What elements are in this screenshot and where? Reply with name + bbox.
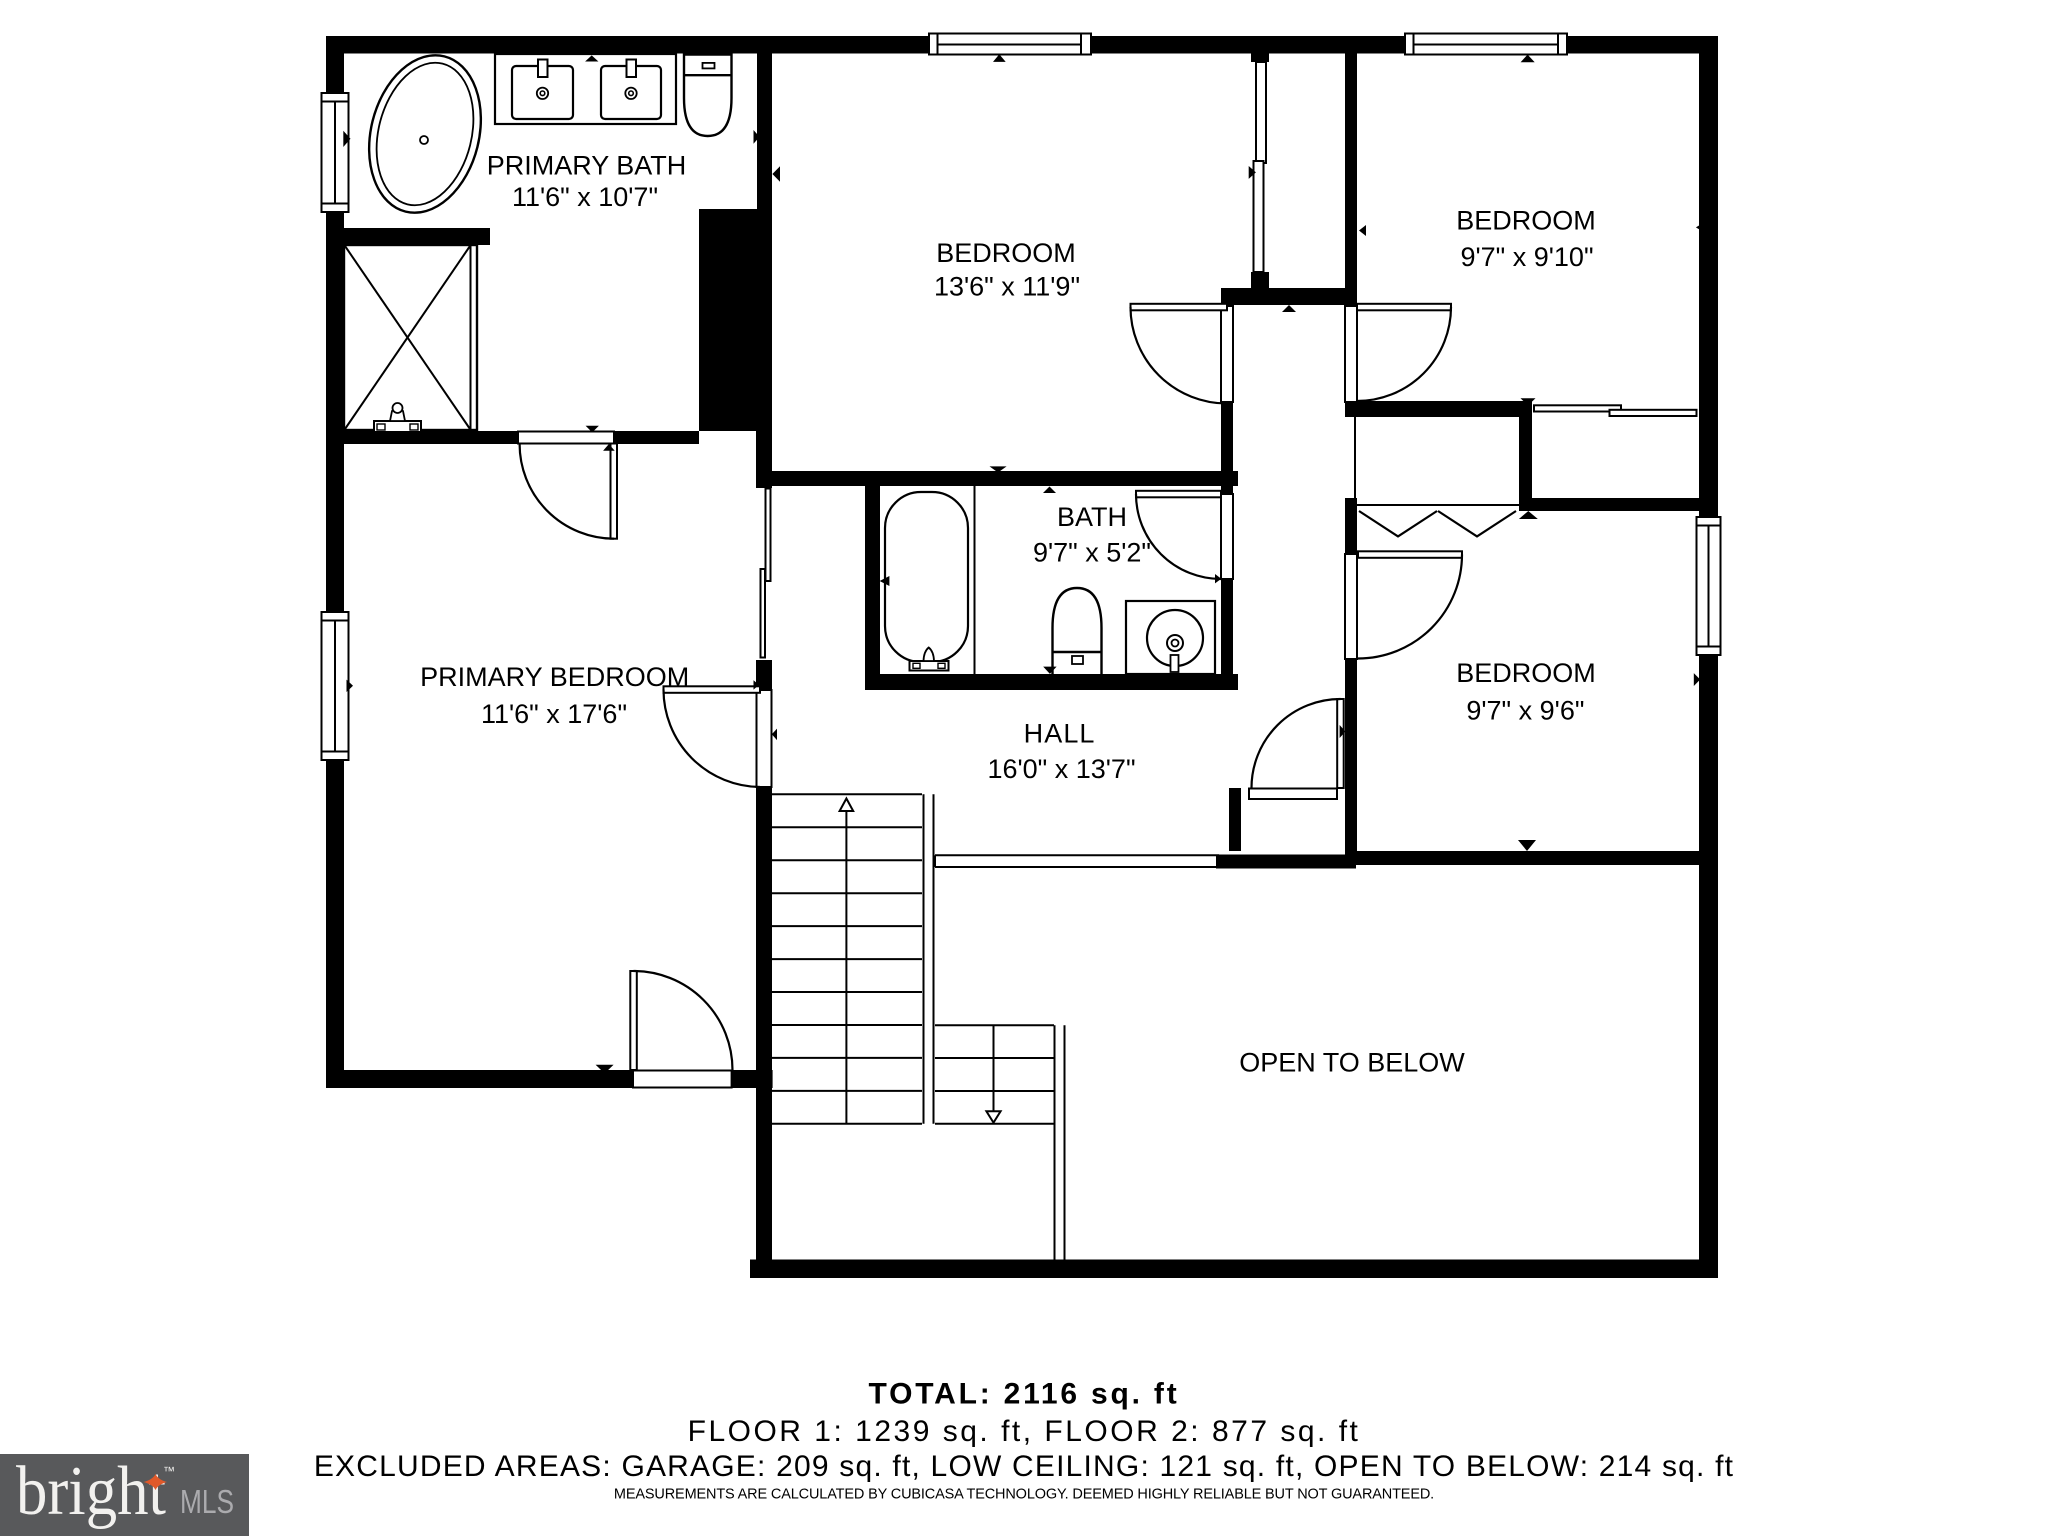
svg-text:bright: bright [16,1453,166,1530]
svg-text:HALL: HALL [1024,719,1096,749]
svg-text:MEASUREMENTS ARE CALCULATED BY: MEASUREMENTS ARE CALCULATED BY CUBICASA … [614,1487,1434,1503]
svg-text:FLOOR 1: 1239 sq. ft, FLOOR 2:: FLOOR 1: 1239 sq. ft, FLOOR 2: 877 sq. f… [688,1415,1361,1448]
svg-text:EXCLUDED AREAS: GARAGE: 209 sq: EXCLUDED AREAS: GARAGE: 209 sq. ft, LOW … [314,1450,1734,1483]
svg-text:MLS: MLS [180,1483,234,1520]
svg-text:13'6" x 11'9": 13'6" x 11'9" [934,272,1080,302]
svg-text:9'7" x 9'10": 9'7" x 9'10" [1460,242,1593,272]
svg-text:BEDROOM: BEDROOM [936,238,1076,268]
svg-text:TOTAL: 2116 sq. ft: TOTAL: 2116 sq. ft [868,1378,1179,1411]
svg-text:11'6" x 17'6": 11'6" x 17'6" [481,699,627,729]
svg-text:PRIMARY BATH: PRIMARY BATH [487,151,687,181]
svg-text:9'7" x 9'6": 9'7" x 9'6" [1466,695,1584,725]
svg-text:BATH: BATH [1057,502,1127,532]
svg-text:11'6" x 10'7": 11'6" x 10'7" [512,182,658,212]
svg-text:OPEN TO BELOW: OPEN TO BELOW [1239,1047,1465,1077]
svg-text:PRIMARY BEDROOM: PRIMARY BEDROOM [420,662,689,692]
svg-text:16'0" x 13'7": 16'0" x 13'7" [987,754,1135,784]
svg-text:BEDROOM: BEDROOM [1456,658,1596,688]
svg-text:™: ™ [163,1464,175,1478]
svg-text:9'7" x 5'2": 9'7" x 5'2" [1033,538,1151,568]
svg-text:BEDROOM: BEDROOM [1456,205,1596,235]
